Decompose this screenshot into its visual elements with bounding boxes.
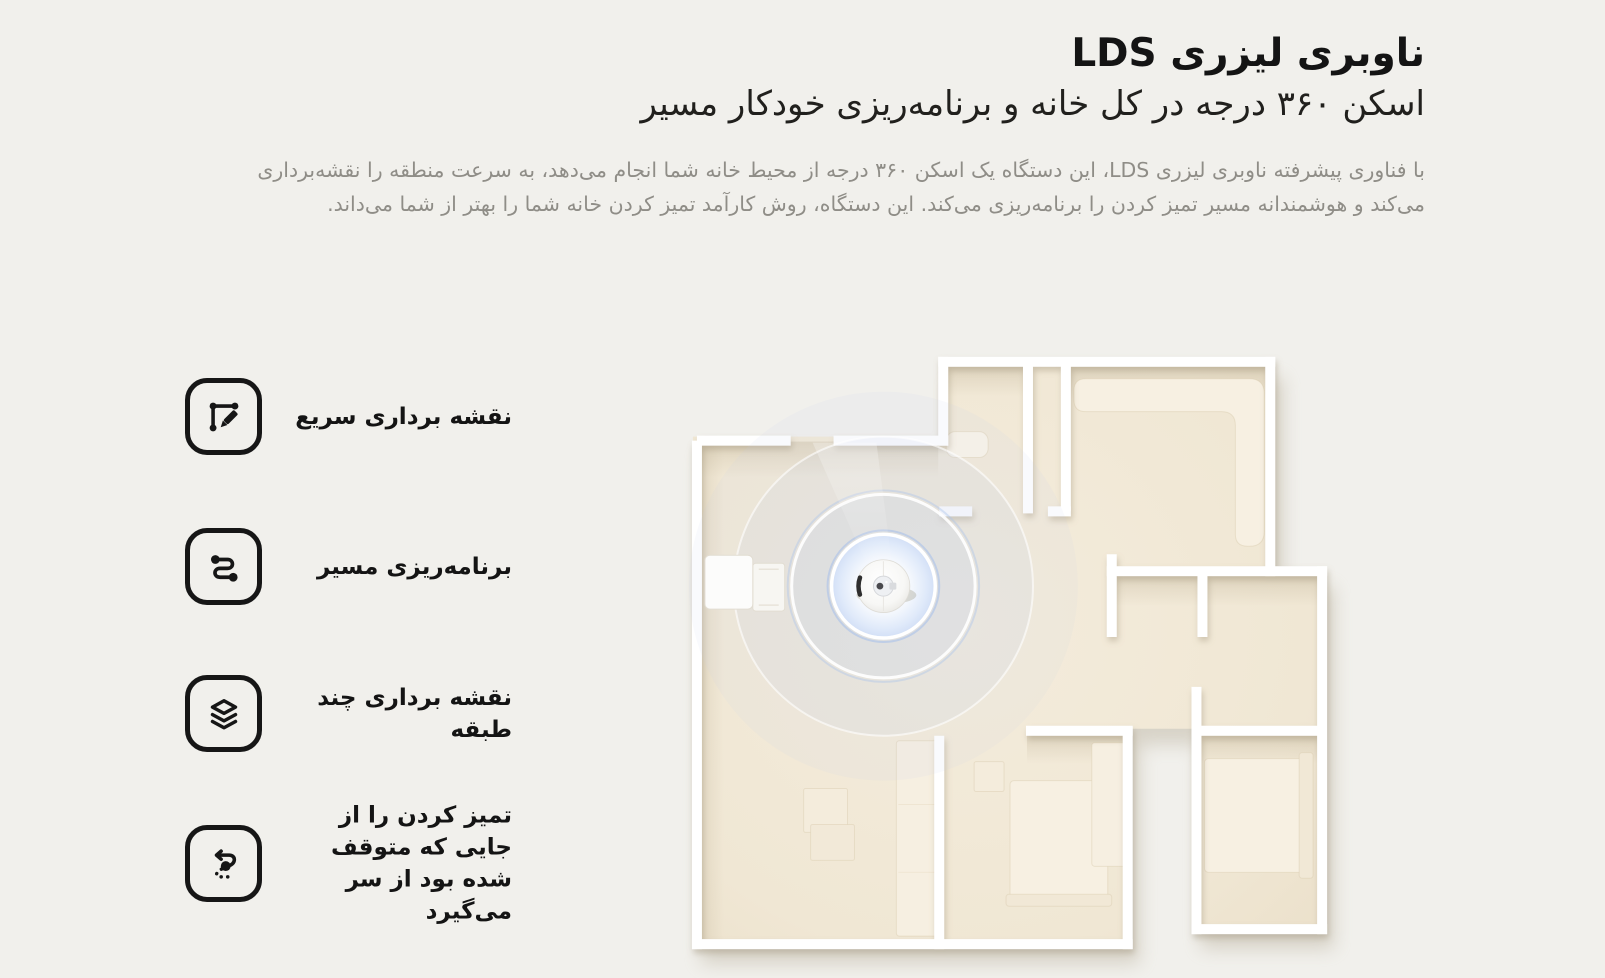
feature-label: نقشه برداری چند طبقه [278,681,512,745]
page-title: ناوبری لیزری LDS [225,30,1425,79]
path-planning-icon [185,528,262,605]
charging-dock [705,555,785,611]
coffee-table [811,824,855,860]
section-description: با فناوری پیشرفته ناوبری لیزری LDS، این … [225,153,1425,222]
feature-quick-mapping: نقشه برداری سریع [185,378,512,455]
feature-label: تمیز کردن را از جایی که متوقف شده بود از… [278,799,512,928]
bed-headboard [1006,894,1112,906]
feature-path-planning: برنامه‌ریزی مسیر [185,528,512,605]
floor-plan-illustration [640,300,1400,978]
nightstand [974,762,1004,792]
bedroom-cabinet [1092,743,1126,867]
feature-resume-cleaning: تمیز کردن را از جایی که متوقف شده بود از… [185,825,512,902]
multi-floor-mapping-icon [185,675,262,752]
page-subtitle: اسکن ۳۶۰ درجه در کل خانه و برنامه‌ریزی خ… [225,82,1425,127]
bed-headboard [1299,753,1313,879]
feature-label: برنامه‌ریزی مسیر [278,550,512,582]
feature-multi-floor-mapping: نقشه برداری چند طبقه [185,675,512,752]
quick-mapping-icon [185,378,262,455]
resume-cleaning-icon [185,825,262,902]
lds-navigation-section: ناوبری لیزری LDS اسکن ۳۶۰ درجه در کل خان… [0,0,1605,978]
section-header: ناوبری لیزری LDS اسکن ۳۶۰ درجه در کل خان… [225,30,1425,222]
bed [1204,759,1306,873]
feature-label: نقشه برداری سریع [278,400,512,432]
